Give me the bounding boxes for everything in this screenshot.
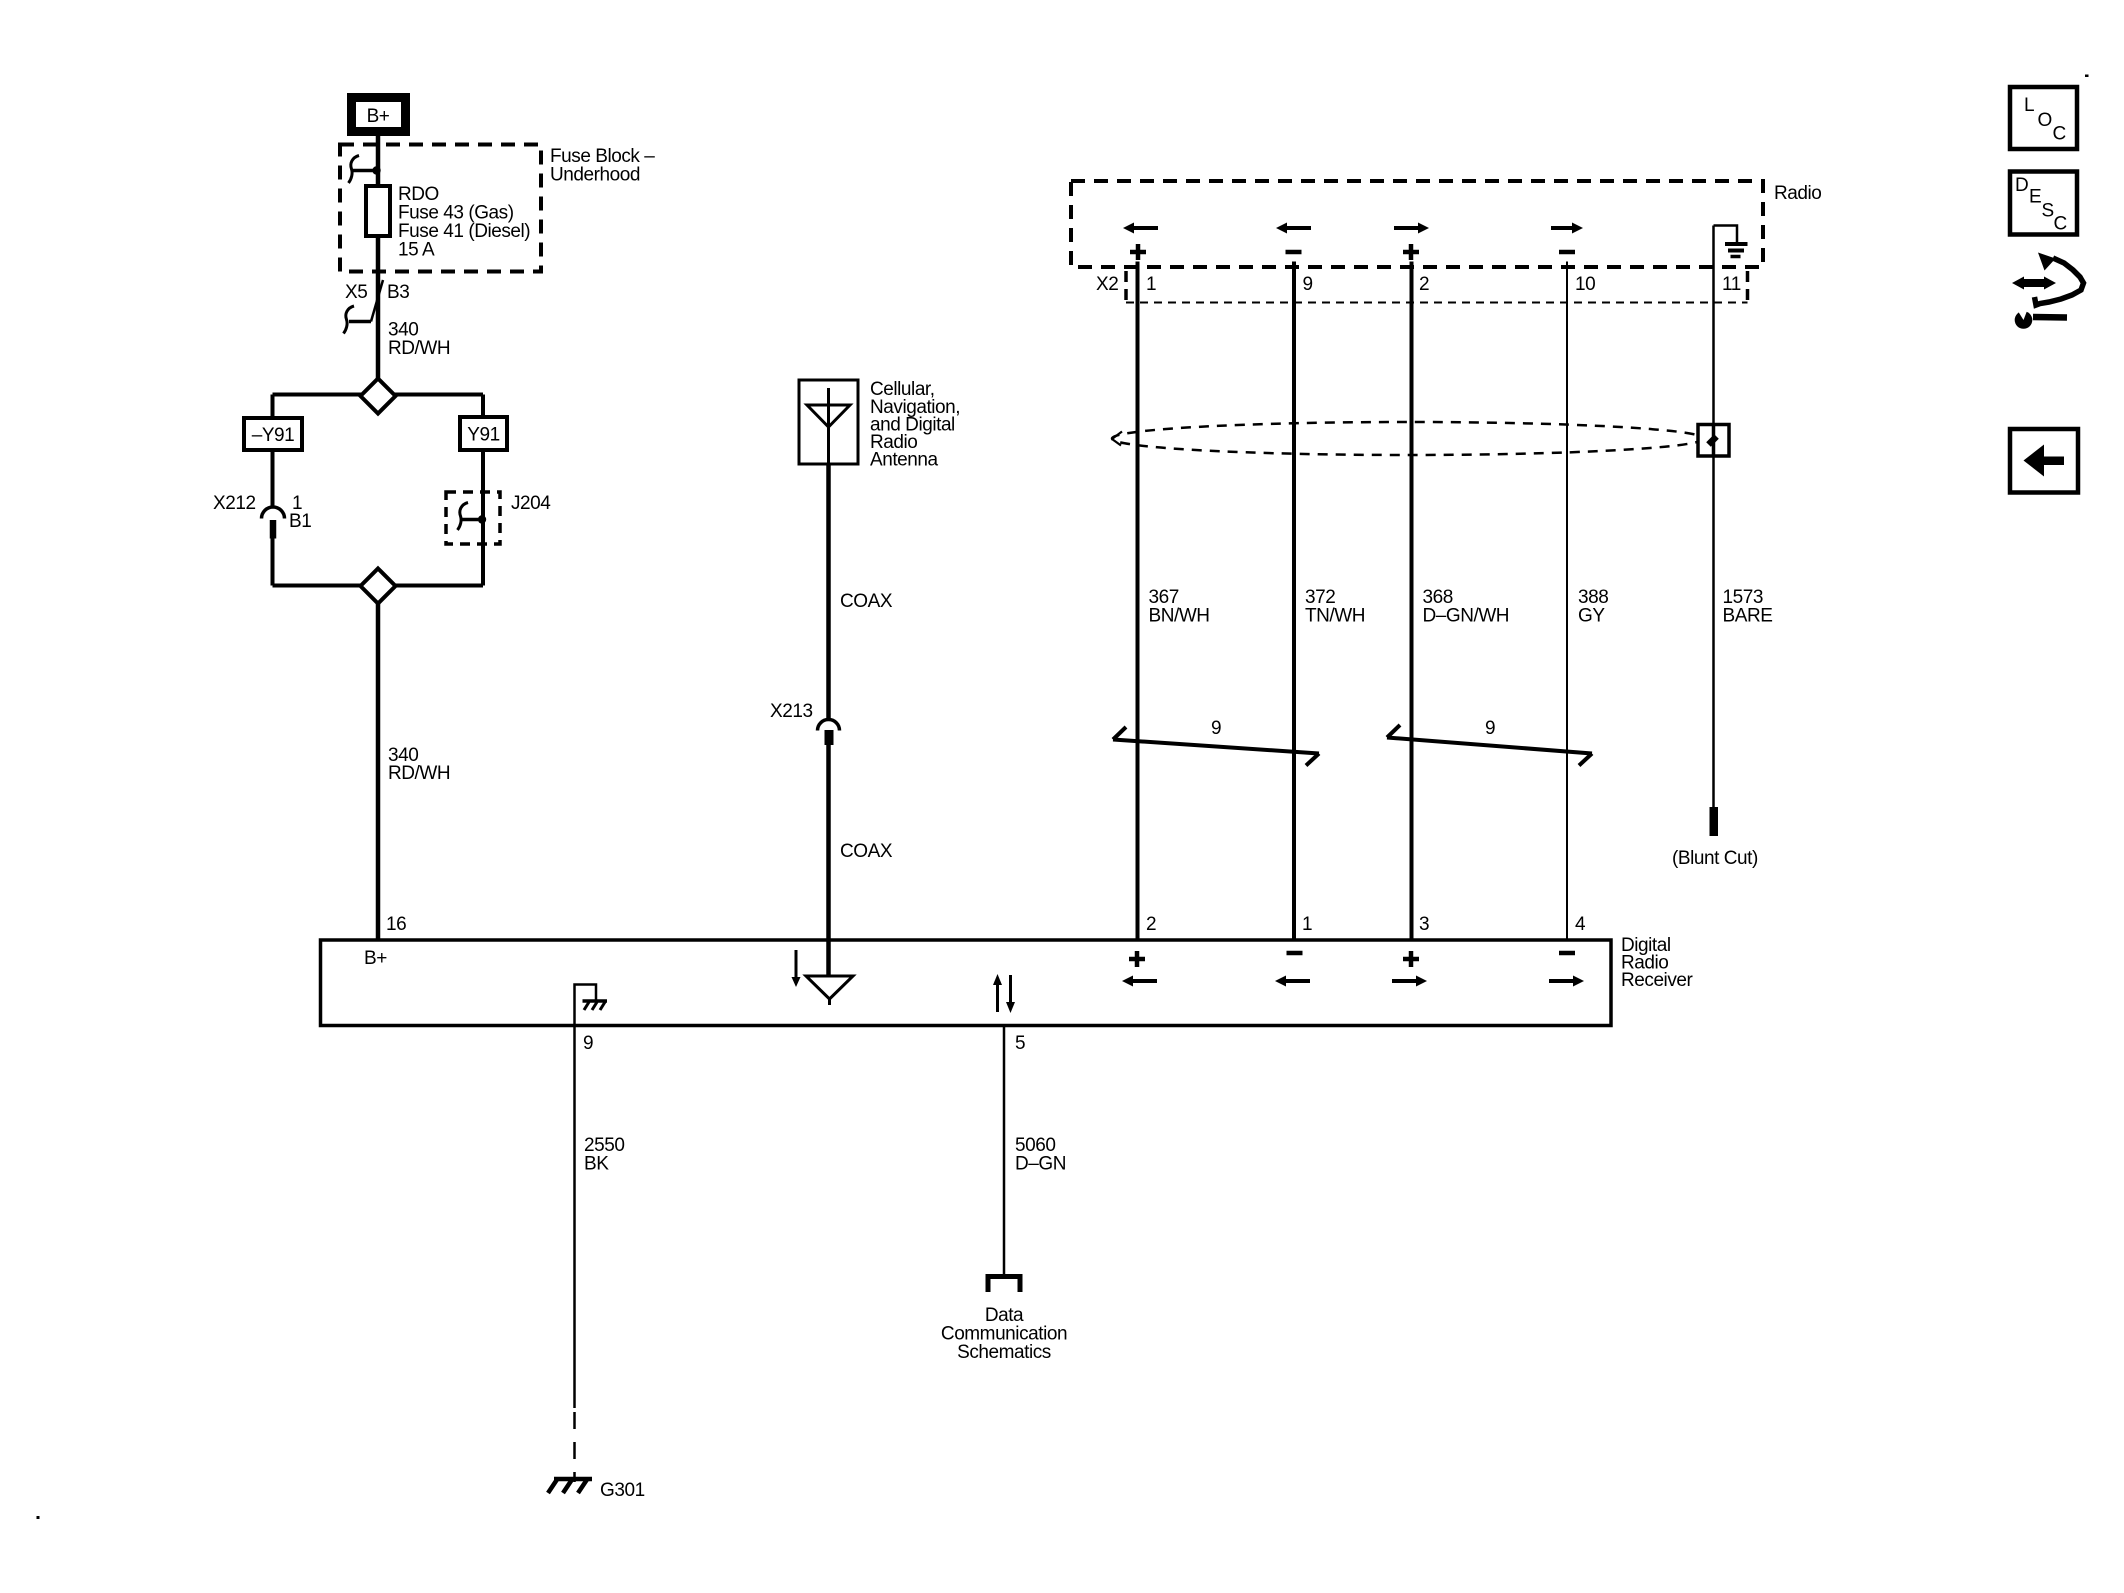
svg-text:(Blunt Cut): (Blunt Cut) bbox=[1672, 848, 1758, 869]
svg-text:D–GN: D–GN bbox=[1015, 1154, 1066, 1175]
svg-text:S: S bbox=[2042, 201, 2054, 222]
svg-text:2: 2 bbox=[1146, 914, 1156, 935]
svg-text:BARE: BARE bbox=[1723, 606, 1773, 627]
svg-text:5: 5 bbox=[1015, 1033, 1025, 1054]
svg-text:Underhood: Underhood bbox=[550, 165, 640, 186]
svg-text:RD/WH: RD/WH bbox=[388, 338, 450, 359]
svg-text:B3: B3 bbox=[387, 282, 409, 303]
svg-text:X212: X212 bbox=[213, 493, 256, 514]
svg-text:Receiver: Receiver bbox=[1621, 970, 1693, 991]
svg-text:B+: B+ bbox=[364, 948, 387, 969]
svg-text:TN/WH: TN/WH bbox=[1305, 606, 1365, 627]
svg-text:9: 9 bbox=[1211, 718, 1221, 739]
svg-text:Schematics: Schematics bbox=[957, 1342, 1051, 1363]
svg-text:16: 16 bbox=[386, 914, 406, 935]
svg-text:9: 9 bbox=[1485, 718, 1495, 739]
svg-text:9: 9 bbox=[583, 1033, 593, 1054]
svg-text:O: O bbox=[2038, 110, 2052, 131]
svg-text:COAX: COAX bbox=[840, 841, 893, 862]
svg-text:BN/WH: BN/WH bbox=[1149, 606, 1210, 627]
svg-text:L: L bbox=[2024, 95, 2034, 116]
svg-text:D–GN/WH: D–GN/WH bbox=[1423, 606, 1510, 627]
svg-text:Antenna: Antenna bbox=[870, 450, 939, 471]
svg-text:–Y91: –Y91 bbox=[252, 425, 295, 446]
svg-text:COAX: COAX bbox=[840, 591, 893, 612]
svg-text:D: D bbox=[2015, 175, 2028, 196]
svg-text:9: 9 bbox=[1303, 274, 1313, 295]
svg-text:B+: B+ bbox=[367, 106, 390, 127]
svg-text:3: 3 bbox=[1419, 914, 1429, 935]
svg-text:GY: GY bbox=[1578, 606, 1605, 627]
svg-text:C: C bbox=[2054, 214, 2067, 235]
svg-text:11: 11 bbox=[1722, 274, 1741, 295]
svg-text:J204: J204 bbox=[511, 493, 551, 514]
svg-text:E: E bbox=[2029, 187, 2041, 208]
svg-text:BK: BK bbox=[584, 1154, 609, 1175]
svg-text:B1: B1 bbox=[289, 511, 311, 532]
svg-text:15 A: 15 A bbox=[398, 240, 435, 261]
svg-text:G301: G301 bbox=[600, 1480, 645, 1501]
svg-text:C: C bbox=[2053, 124, 2066, 145]
svg-text:1: 1 bbox=[1302, 914, 1312, 935]
svg-text:RD/WH: RD/WH bbox=[388, 763, 450, 784]
svg-text:X2: X2 bbox=[1096, 274, 1118, 295]
svg-text:1: 1 bbox=[1146, 274, 1156, 295]
svg-text:2: 2 bbox=[1419, 274, 1429, 295]
svg-text:X5: X5 bbox=[345, 282, 367, 303]
svg-text:X213: X213 bbox=[770, 701, 813, 722]
svg-text:4: 4 bbox=[1575, 914, 1586, 935]
svg-text:Y91: Y91 bbox=[467, 425, 499, 446]
svg-text:Radio: Radio bbox=[1774, 183, 1821, 204]
svg-text:10: 10 bbox=[1575, 274, 1595, 295]
